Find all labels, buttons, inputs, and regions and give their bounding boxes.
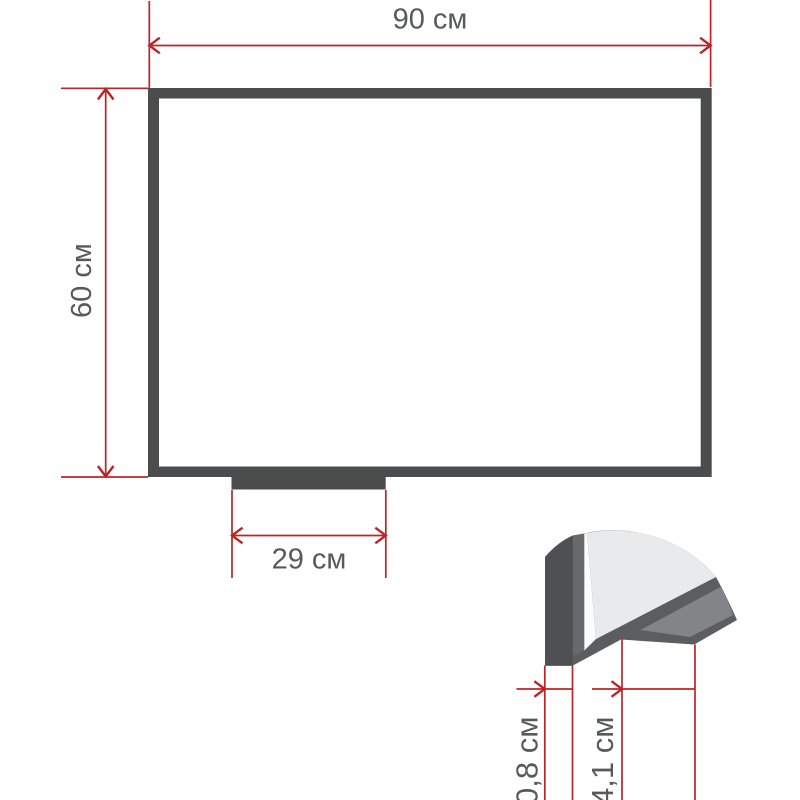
- svg-text:90 см: 90 см: [393, 4, 468, 36]
- svg-text:60 см: 60 см: [66, 243, 98, 318]
- svg-text:4,1 см: 4,1 см: [585, 716, 620, 800]
- svg-text:0,8 см: 0,8 см: [510, 716, 545, 800]
- svg-text:29 см: 29 см: [272, 544, 347, 576]
